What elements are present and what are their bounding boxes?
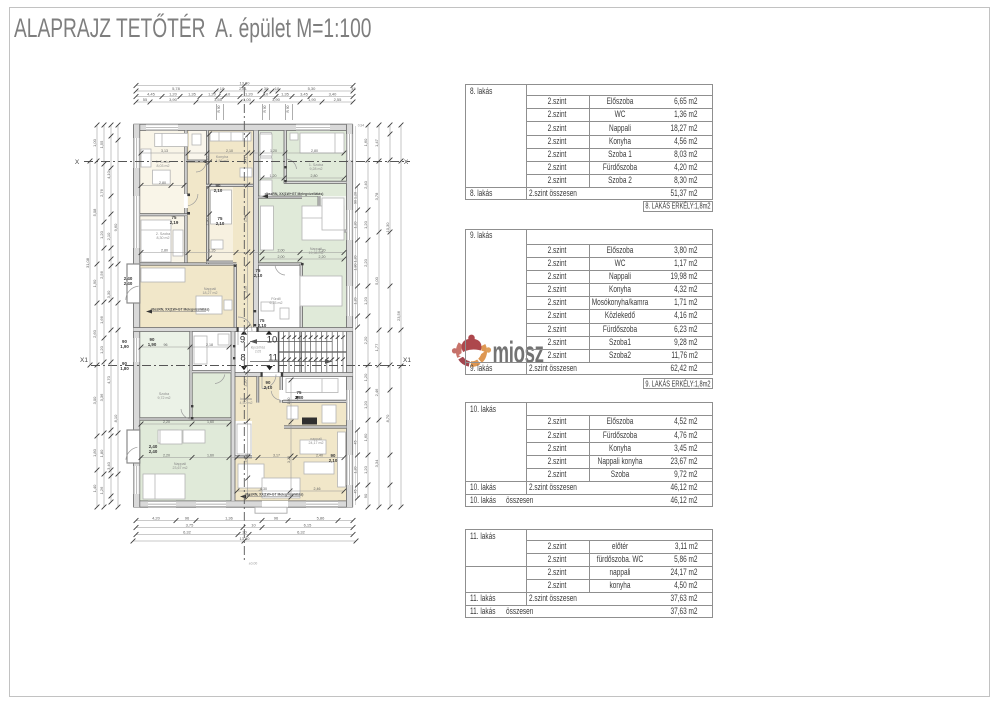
svg-text:13,80: 13,80 [239,536,250,541]
svg-text:2,19: 2,19 [170,220,179,225]
svg-text:1,20: 1,20 [363,220,368,229]
svg-text:±0,00: ±0,00 [249,562,258,566]
svg-text:23,56: 23,56 [396,310,401,321]
svg-text:2,10: 2,10 [329,458,338,463]
svg-text:10: 10 [275,86,280,91]
svg-text:1,20: 1,20 [353,298,357,305]
svg-text:4,30: 4,30 [260,487,267,491]
svg-text:1,20: 1,20 [270,174,277,178]
svg-text:3,45: 3,45 [300,91,309,96]
svg-text:2,80: 2,80 [295,395,304,400]
svg-text:6,32: 6,32 [297,529,306,534]
svg-text:3,36: 3,36 [99,393,104,402]
svg-text:4,10: 4,10 [106,170,111,179]
svg-text:90 1,20: 90 1,20 [353,192,357,204]
svg-text:2,18: 2,18 [206,343,213,347]
svg-text:1,20: 1,20 [99,345,104,354]
svg-text:3,40: 3,40 [106,461,111,470]
svg-text:5,00: 5,00 [374,276,379,285]
svg-text:2,40: 2,40 [363,180,368,189]
svg-text:2,10: 2,10 [214,188,223,193]
svg-text:55: 55 [143,97,148,102]
svg-text:1,47: 1,47 [374,138,379,147]
svg-text:1,35: 1,35 [188,91,197,96]
svg-text:31,08: 31,08 [85,257,90,268]
svg-text:2,46: 2,46 [314,487,321,491]
svg-text:3,00: 3,00 [92,396,97,405]
svg-text:96: 96 [274,515,279,520]
svg-text:dbszRN, XX(1W+GT Melegvízellát: dbszRN, XX(1W+GT Melegvízellátás) [245,492,304,496]
svg-text:10: 10 [251,522,256,527]
svg-text:1,36: 1,36 [225,515,234,520]
svg-text:2,10: 2,10 [106,232,111,241]
svg-text:5,08: 5,08 [92,208,97,217]
svg-text:3,40: 3,40 [329,91,338,96]
svg-text:X: X [404,159,409,166]
svg-text:10: 10 [264,91,269,96]
svg-text:2,80: 2,80 [311,174,318,178]
svg-text:8: 8 [240,353,245,364]
svg-text:2,55: 2,55 [334,97,343,102]
svg-text:1,20: 1,20 [353,222,357,229]
svg-text:2,10: 2,10 [264,385,273,390]
svg-text:2,81: 2,81 [239,86,248,91]
svg-text:2,10: 2,10 [216,221,225,226]
svg-text:3,78: 3,78 [374,192,379,201]
svg-text:30: 30 [242,529,247,534]
svg-text:2,40: 2,40 [316,453,323,457]
svg-text:1,90: 1,90 [92,279,97,288]
svg-text:4,20: 4,20 [152,515,161,520]
svg-text:24,17 m2: 24,17 m2 [309,441,324,445]
svg-text:2,80: 2,80 [311,149,318,153]
svg-text:5,86: 5,86 [317,515,326,520]
svg-text:1,20: 1,20 [363,465,368,474]
svg-text:3,30: 3,30 [106,290,111,299]
svg-text:3,90: 3,90 [169,97,178,102]
svg-text:1,20: 1,20 [99,230,104,239]
svg-text:1,20: 1,20 [270,149,277,153]
svg-text:1,80 1,20: 1,80 1,20 [353,256,357,271]
svg-text:2,56: 2,56 [99,270,104,279]
svg-text:1,90: 1,90 [308,97,317,102]
svg-text:2,10: 2,10 [205,157,209,164]
svg-text:1,55: 1,55 [99,140,104,149]
svg-text:4,50 m2: 4,50 m2 [240,401,253,405]
svg-text:1,60: 1,60 [363,433,368,442]
svg-text:6,15: 6,15 [304,522,313,527]
svg-text:1,90: 1,90 [148,342,157,347]
svg-text:13,80: 13,80 [239,80,250,85]
svg-text:9,28 m2: 9,28 m2 [310,167,323,171]
svg-text:2,10: 2,10 [226,149,233,153]
svg-text:11: 11 [268,353,278,364]
svg-text:3,90: 3,90 [272,97,281,102]
svg-text:8,10: 8,10 [113,414,118,423]
svg-text:2,40: 2,40 [149,449,158,454]
svg-text:2,05: 2,05 [255,350,261,354]
svg-text:30: 30 [264,86,269,91]
svg-text:2,00: 2,00 [278,248,285,252]
svg-text:1,20: 1,20 [353,467,357,474]
svg-text:1,35: 1,35 [281,91,290,96]
svg-text:1,77: 1,77 [374,343,379,352]
svg-text:dbszRN, XX(1W+GT Melegvízellát: dbszRN, XX(1W+GT Melegvízellátás) [151,307,210,311]
svg-text:8,30 m2: 8,30 m2 [157,236,170,240]
svg-text:1,20: 1,20 [208,91,217,96]
svg-text:2,20: 2,20 [163,420,170,424]
svg-text:45: 45 [353,441,357,445]
svg-text:5,78: 5,78 [172,86,181,91]
svg-text:10: 10 [226,91,231,96]
svg-text:0,94: 0,94 [358,124,365,128]
svg-text:3,17: 3,17 [273,453,280,457]
svg-text:X: X [75,159,80,166]
svg-text:1,20: 1,20 [245,91,254,96]
svg-text:1,80: 1,80 [120,366,129,371]
svg-text:45: 45 [353,490,357,494]
svg-text:96: 96 [185,515,190,520]
svg-text:2,20: 2,20 [163,453,170,457]
svg-text:1,80: 1,80 [99,449,104,458]
svg-text:X1: X1 [80,357,88,364]
svg-text:8,70: 8,70 [385,414,390,423]
svg-text:2,20: 2,20 [363,258,368,267]
svg-text:10,30: 10,30 [385,222,390,233]
svg-text:9,72 m2: 9,72 m2 [158,396,171,400]
svg-text:2,80: 2,80 [161,248,168,252]
svg-text:1,80: 1,80 [92,448,97,457]
svg-text:23,67 m2: 23,67 m2 [173,466,188,470]
svg-text:19,98 m2: 19,98 m2 [309,251,324,255]
svg-text:1,80: 1,80 [287,398,291,405]
svg-text:96: 96 [164,343,168,347]
svg-text:2,80: 2,80 [159,181,166,185]
svg-text:2,20: 2,20 [363,336,368,345]
svg-text:8,03 m2: 8,03 m2 [157,164,170,168]
svg-text:1,00: 1,00 [92,138,97,147]
svg-text:1,40: 1,40 [92,484,97,493]
svg-text:3,34: 3,34 [374,459,379,468]
svg-text:4,45: 4,45 [147,91,156,96]
svg-text:10: 10 [220,86,225,91]
svg-text:6,23 m2: 6,23 m2 [270,301,283,305]
svg-text:2,46: 2,46 [374,388,379,397]
svg-text:45: 45 [351,86,356,91]
svg-text:R 90: R 90 [263,105,267,112]
svg-text:1,60: 1,60 [363,138,368,147]
svg-text:1,90: 1,90 [120,344,129,349]
svg-text:5,30: 5,30 [308,86,317,91]
svg-text:R 90: R 90 [217,105,221,112]
svg-text:4,70: 4,70 [106,375,111,384]
svg-text:2,00: 2,00 [278,255,285,259]
svg-text:1,00: 1,00 [243,97,252,102]
svg-text:2,10: 2,10 [254,273,263,278]
svg-text:2,20: 2,20 [319,255,326,259]
svg-text:1,20: 1,20 [363,400,368,409]
svg-text:1,60: 1,60 [207,453,214,457]
svg-text:1,60: 1,60 [207,420,214,424]
svg-text:90: 90 [363,493,368,498]
svg-text:2,90: 2,90 [205,219,209,226]
svg-text:3,13: 3,13 [161,149,168,153]
svg-text:18,27 m2: 18,27 m2 [203,291,218,295]
svg-text:2,76: 2,76 [99,188,104,197]
svg-text:2,60: 2,60 [92,329,97,338]
svg-text:1,20: 1,20 [363,373,368,382]
svg-text:1,20: 1,20 [363,296,368,305]
svg-text:3,20: 3,20 [287,456,291,463]
svg-text:6,32: 6,32 [183,529,192,534]
svg-text:1,26: 1,26 [99,486,104,495]
svg-text:3,75: 3,75 [186,522,195,527]
svg-text:2,40: 2,40 [124,281,133,286]
svg-text:R 90: R 90 [286,105,290,112]
svg-text:2,10: 2,10 [258,323,267,328]
svg-text:3,55: 3,55 [214,97,223,102]
svg-text:1,66: 1,66 [99,315,104,324]
svg-text:9,60: 9,60 [113,223,118,232]
svg-text:10: 10 [267,335,278,346]
svg-text:X1: X1 [403,357,411,364]
svg-text:dbszRN, XX(1W+GT Melegvízellát: dbszRN, XX(1W+GT Melegvízellátás) [265,192,324,196]
svg-text:1,20: 1,20 [169,91,178,96]
